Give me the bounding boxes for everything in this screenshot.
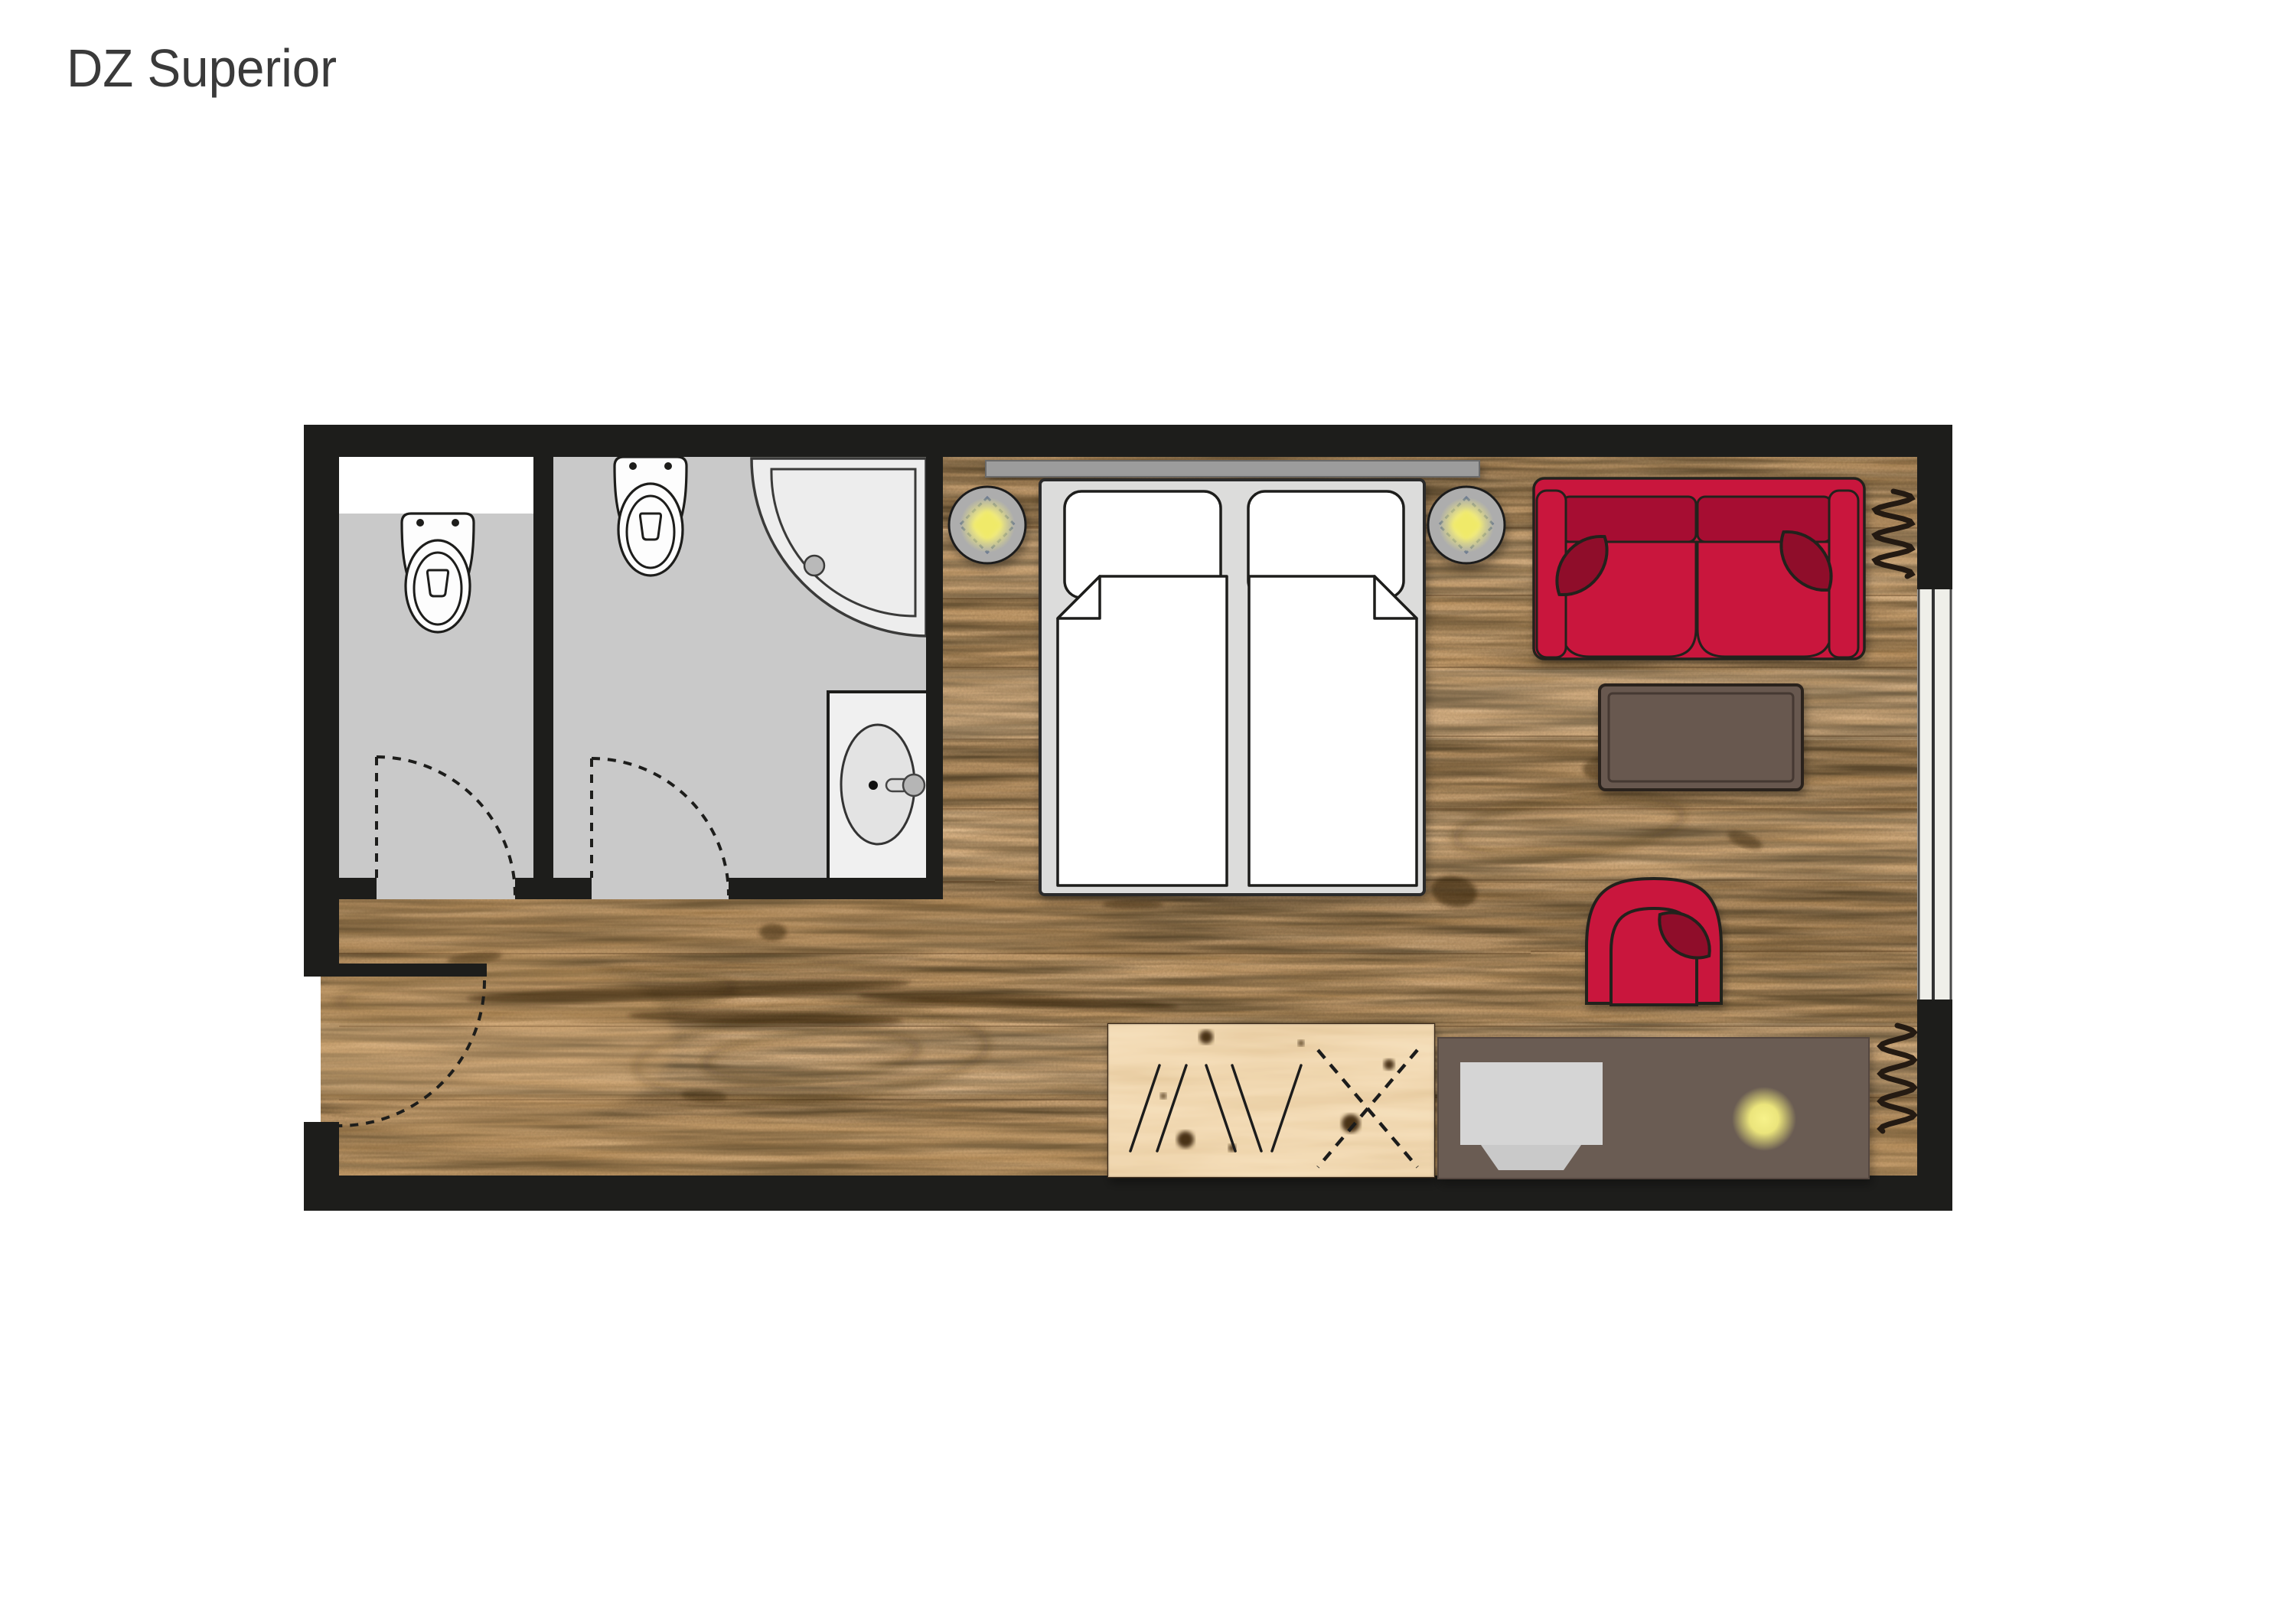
svg-text:DZ Superior: DZ Superior (67, 38, 337, 98)
